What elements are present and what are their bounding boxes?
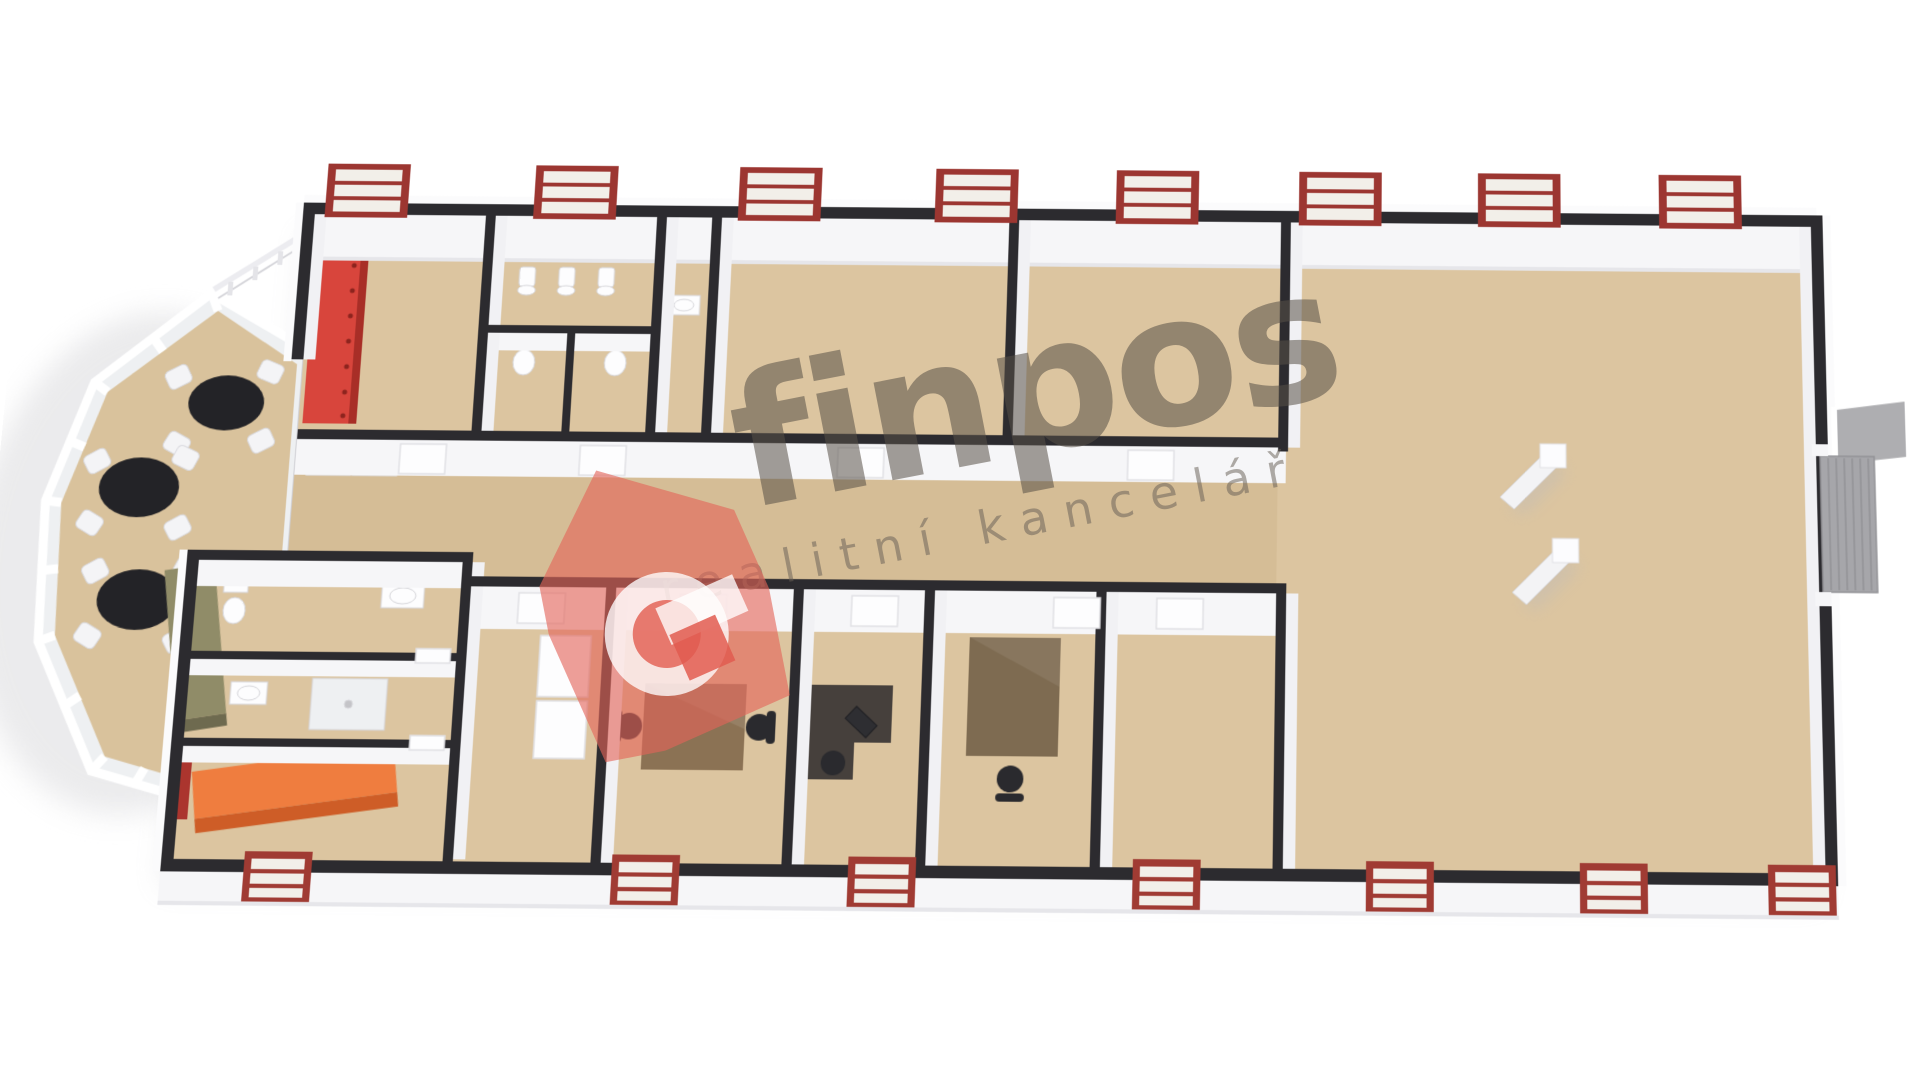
window	[738, 167, 823, 221]
window	[1366, 861, 1434, 912]
window	[1116, 170, 1200, 224]
window	[1299, 172, 1382, 226]
floor-plan-svg	[0, 7, 1920, 1080]
window	[1768, 865, 1837, 916]
window	[846, 857, 916, 908]
window	[610, 854, 681, 905]
window	[1659, 175, 1742, 229]
urinal	[596, 268, 615, 296]
window	[1132, 859, 1201, 910]
window	[533, 165, 619, 219]
shower-tray	[309, 678, 388, 730]
window	[1580, 863, 1648, 914]
urinal	[557, 267, 577, 295]
sink	[229, 682, 267, 705]
window	[324, 164, 411, 218]
window	[241, 851, 313, 902]
building-3d-scene	[0, 7, 1920, 1080]
floor-plan-render: finpos realitní kancelář	[0, 0, 1920, 1080]
window	[934, 169, 1018, 223]
window	[1478, 173, 1561, 227]
urinal	[517, 267, 537, 295]
